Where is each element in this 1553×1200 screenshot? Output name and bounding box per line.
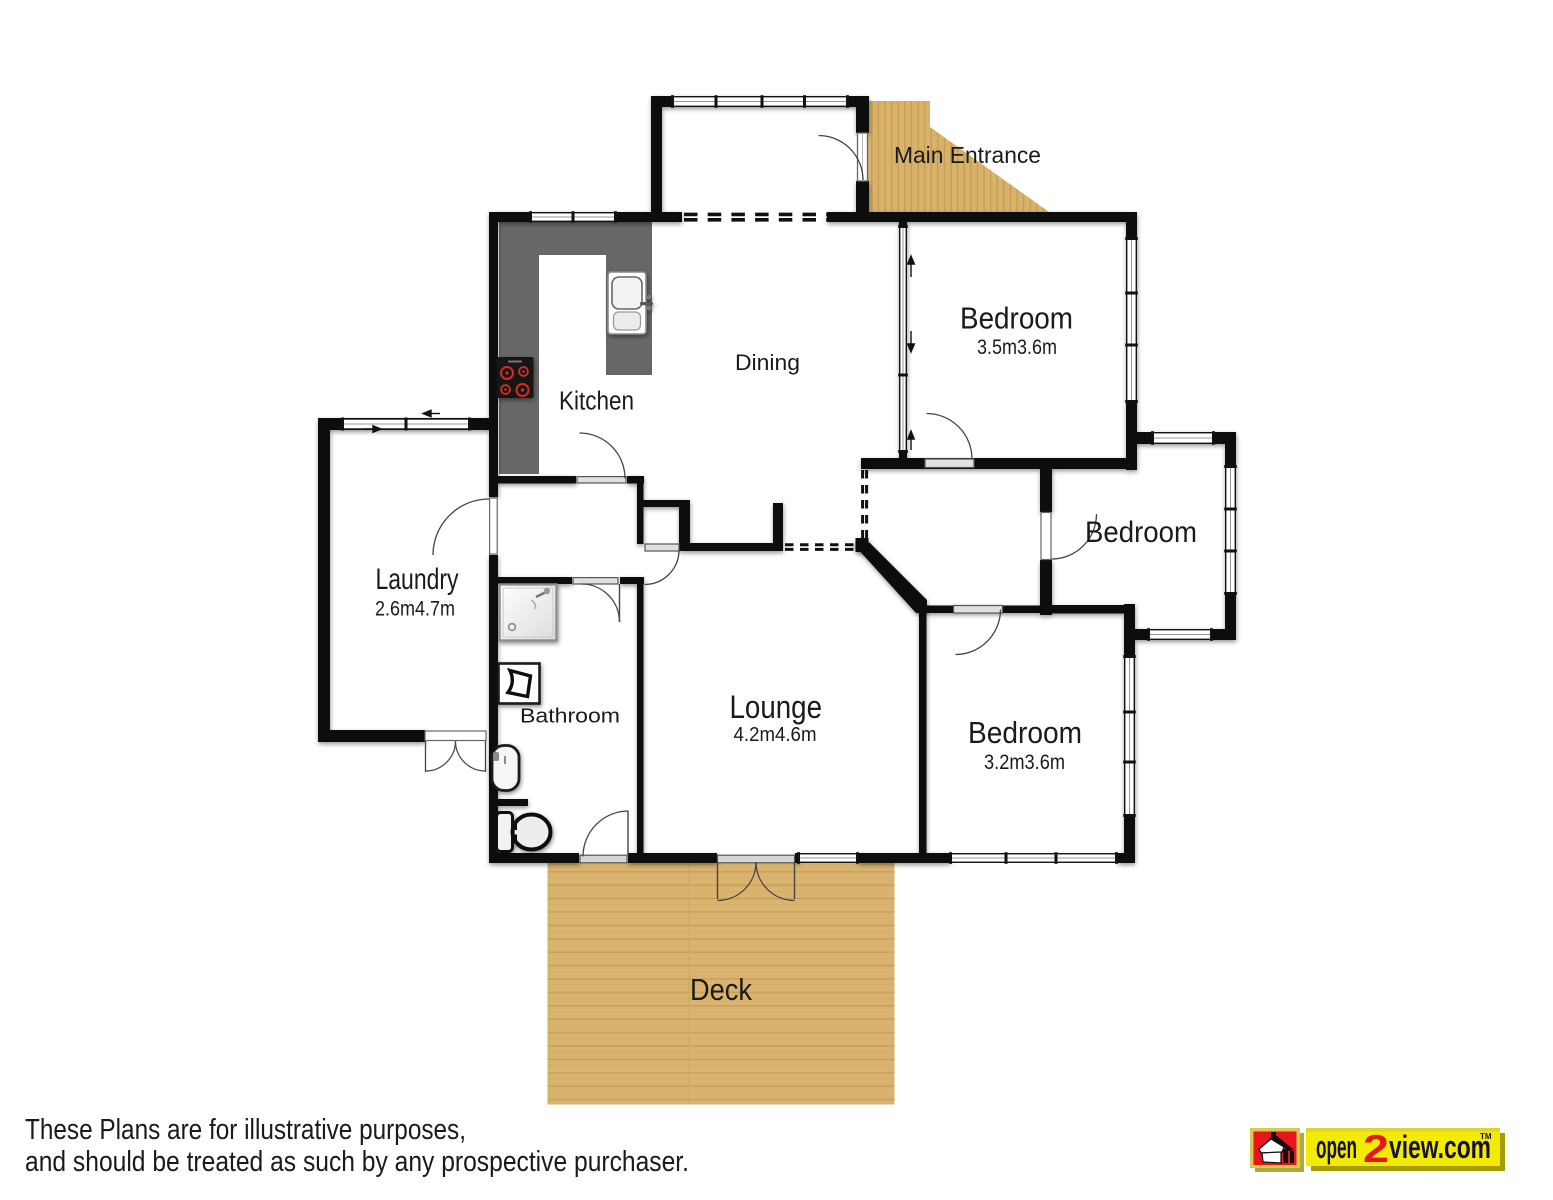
svg-text:Bedroom: Bedroom [968, 715, 1082, 750]
svg-text:and should be treated as such: and should be treated as such by any pro… [25, 1146, 689, 1178]
svg-text:3.5m3.6m: 3.5m3.6m [977, 336, 1057, 359]
svg-text:2.6m4.7m: 2.6m4.7m [375, 598, 455, 621]
svg-text:Dining: Dining [735, 350, 800, 375]
svg-text:Main Entrance: Main Entrance [894, 142, 1041, 168]
svg-text:Bedroom: Bedroom [960, 301, 1073, 336]
svg-text:These Plans are for illustrati: These Plans are for illustrative purpose… [25, 1114, 466, 1146]
svg-text:Bathroom: Bathroom [520, 706, 620, 728]
svg-text:4.2m4.6m: 4.2m4.6m [734, 724, 817, 746]
svg-text:Bedroom: Bedroom [1085, 516, 1197, 549]
svg-text:Laundry: Laundry [376, 563, 459, 596]
svg-text:Lounge: Lounge [730, 689, 823, 725]
svg-text:2: 2 [1363, 1128, 1389, 1171]
svg-text:Kitchen: Kitchen [559, 388, 634, 416]
svg-text:open: open [1316, 1129, 1357, 1165]
svg-text:view.com: view.com [1389, 1129, 1491, 1165]
svg-text:Deck: Deck [690, 973, 753, 1007]
svg-text:TM: TM [1480, 1132, 1492, 1141]
svg-text:3.2m3.6m: 3.2m3.6m [984, 751, 1065, 774]
